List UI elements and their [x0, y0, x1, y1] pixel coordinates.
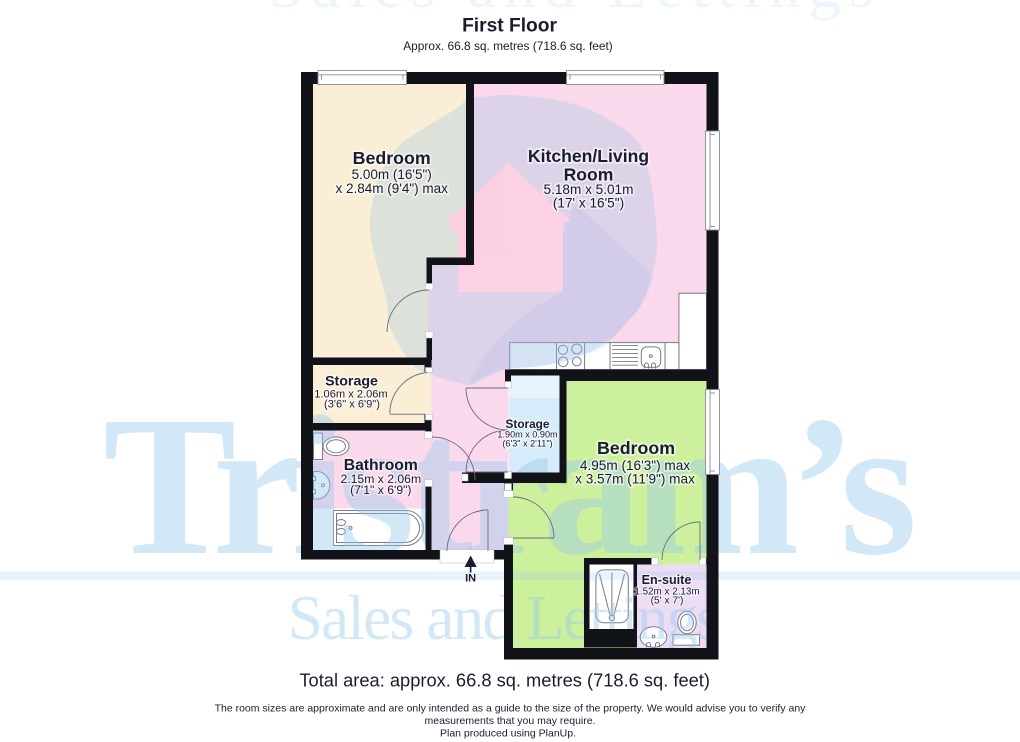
svg-text:Total area: approx. 66.8 sq. m: Total area: approx. 66.8 sq. metres (718… [299, 670, 710, 691]
svg-text:(17' x 16'5"): (17' x 16'5") [553, 196, 624, 211]
svg-text:Kitchen/Living: Kitchen/Living [528, 146, 649, 166]
svg-text:The room sizes are approximate: The room sizes are approximate and are o… [215, 703, 807, 715]
svg-text:Bedroom: Bedroom [353, 148, 431, 168]
svg-text:Plan produced using PlanUp.: Plan produced using PlanUp. [440, 728, 576, 740]
svg-text:Approx. 66.8 sq. metres (718.6: Approx. 66.8 sq. metres (718.6 sq. feet) [403, 39, 613, 53]
svg-text:En-suite: En-suite [642, 573, 692, 587]
svg-text:(6'3" x 2'11"): (6'3" x 2'11") [502, 439, 552, 449]
svg-text:measurements that you may requ: measurements that you may require. [425, 715, 596, 727]
svg-text:Storage: Storage [325, 374, 378, 390]
svg-text:x 2.84m (9'4") max: x 2.84m (9'4") max [335, 181, 448, 196]
svg-text:(5' x 7'): (5' x 7') [651, 596, 684, 607]
svg-text:Sales and Lettings: Sales and Lettings [268, 0, 881, 21]
svg-text:First Floor: First Floor [462, 16, 557, 37]
svg-text:(3'6" x 6'9"): (3'6" x 6'9") [324, 399, 380, 411]
svg-text:x 3.57m (11'9") max: x 3.57m (11'9") max [575, 472, 695, 487]
svg-text:(7'1" x 6'9"): (7'1" x 6'9") [350, 483, 411, 497]
svg-text:Bedroom: Bedroom [597, 438, 675, 458]
svg-text:5.00m (16'5"): 5.00m (16'5") [352, 167, 432, 182]
svg-text:IN: IN [465, 573, 476, 585]
